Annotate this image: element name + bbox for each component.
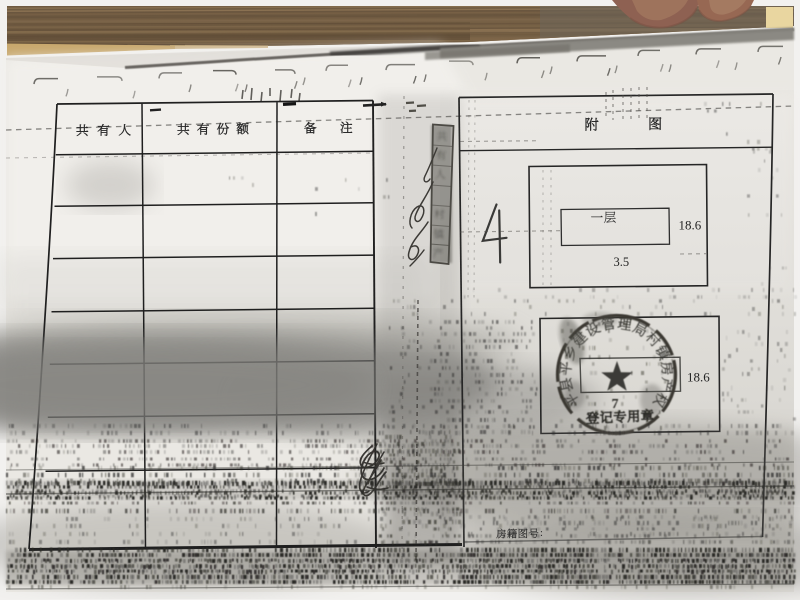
svg-text:18.6: 18.6 [687, 370, 710, 385]
svg-text:7: 7 [612, 397, 619, 412]
svg-text::: : [540, 528, 543, 539]
svg-text:18.6: 18.6 [679, 218, 702, 233]
svg-text:3.5: 3.5 [614, 255, 630, 269]
